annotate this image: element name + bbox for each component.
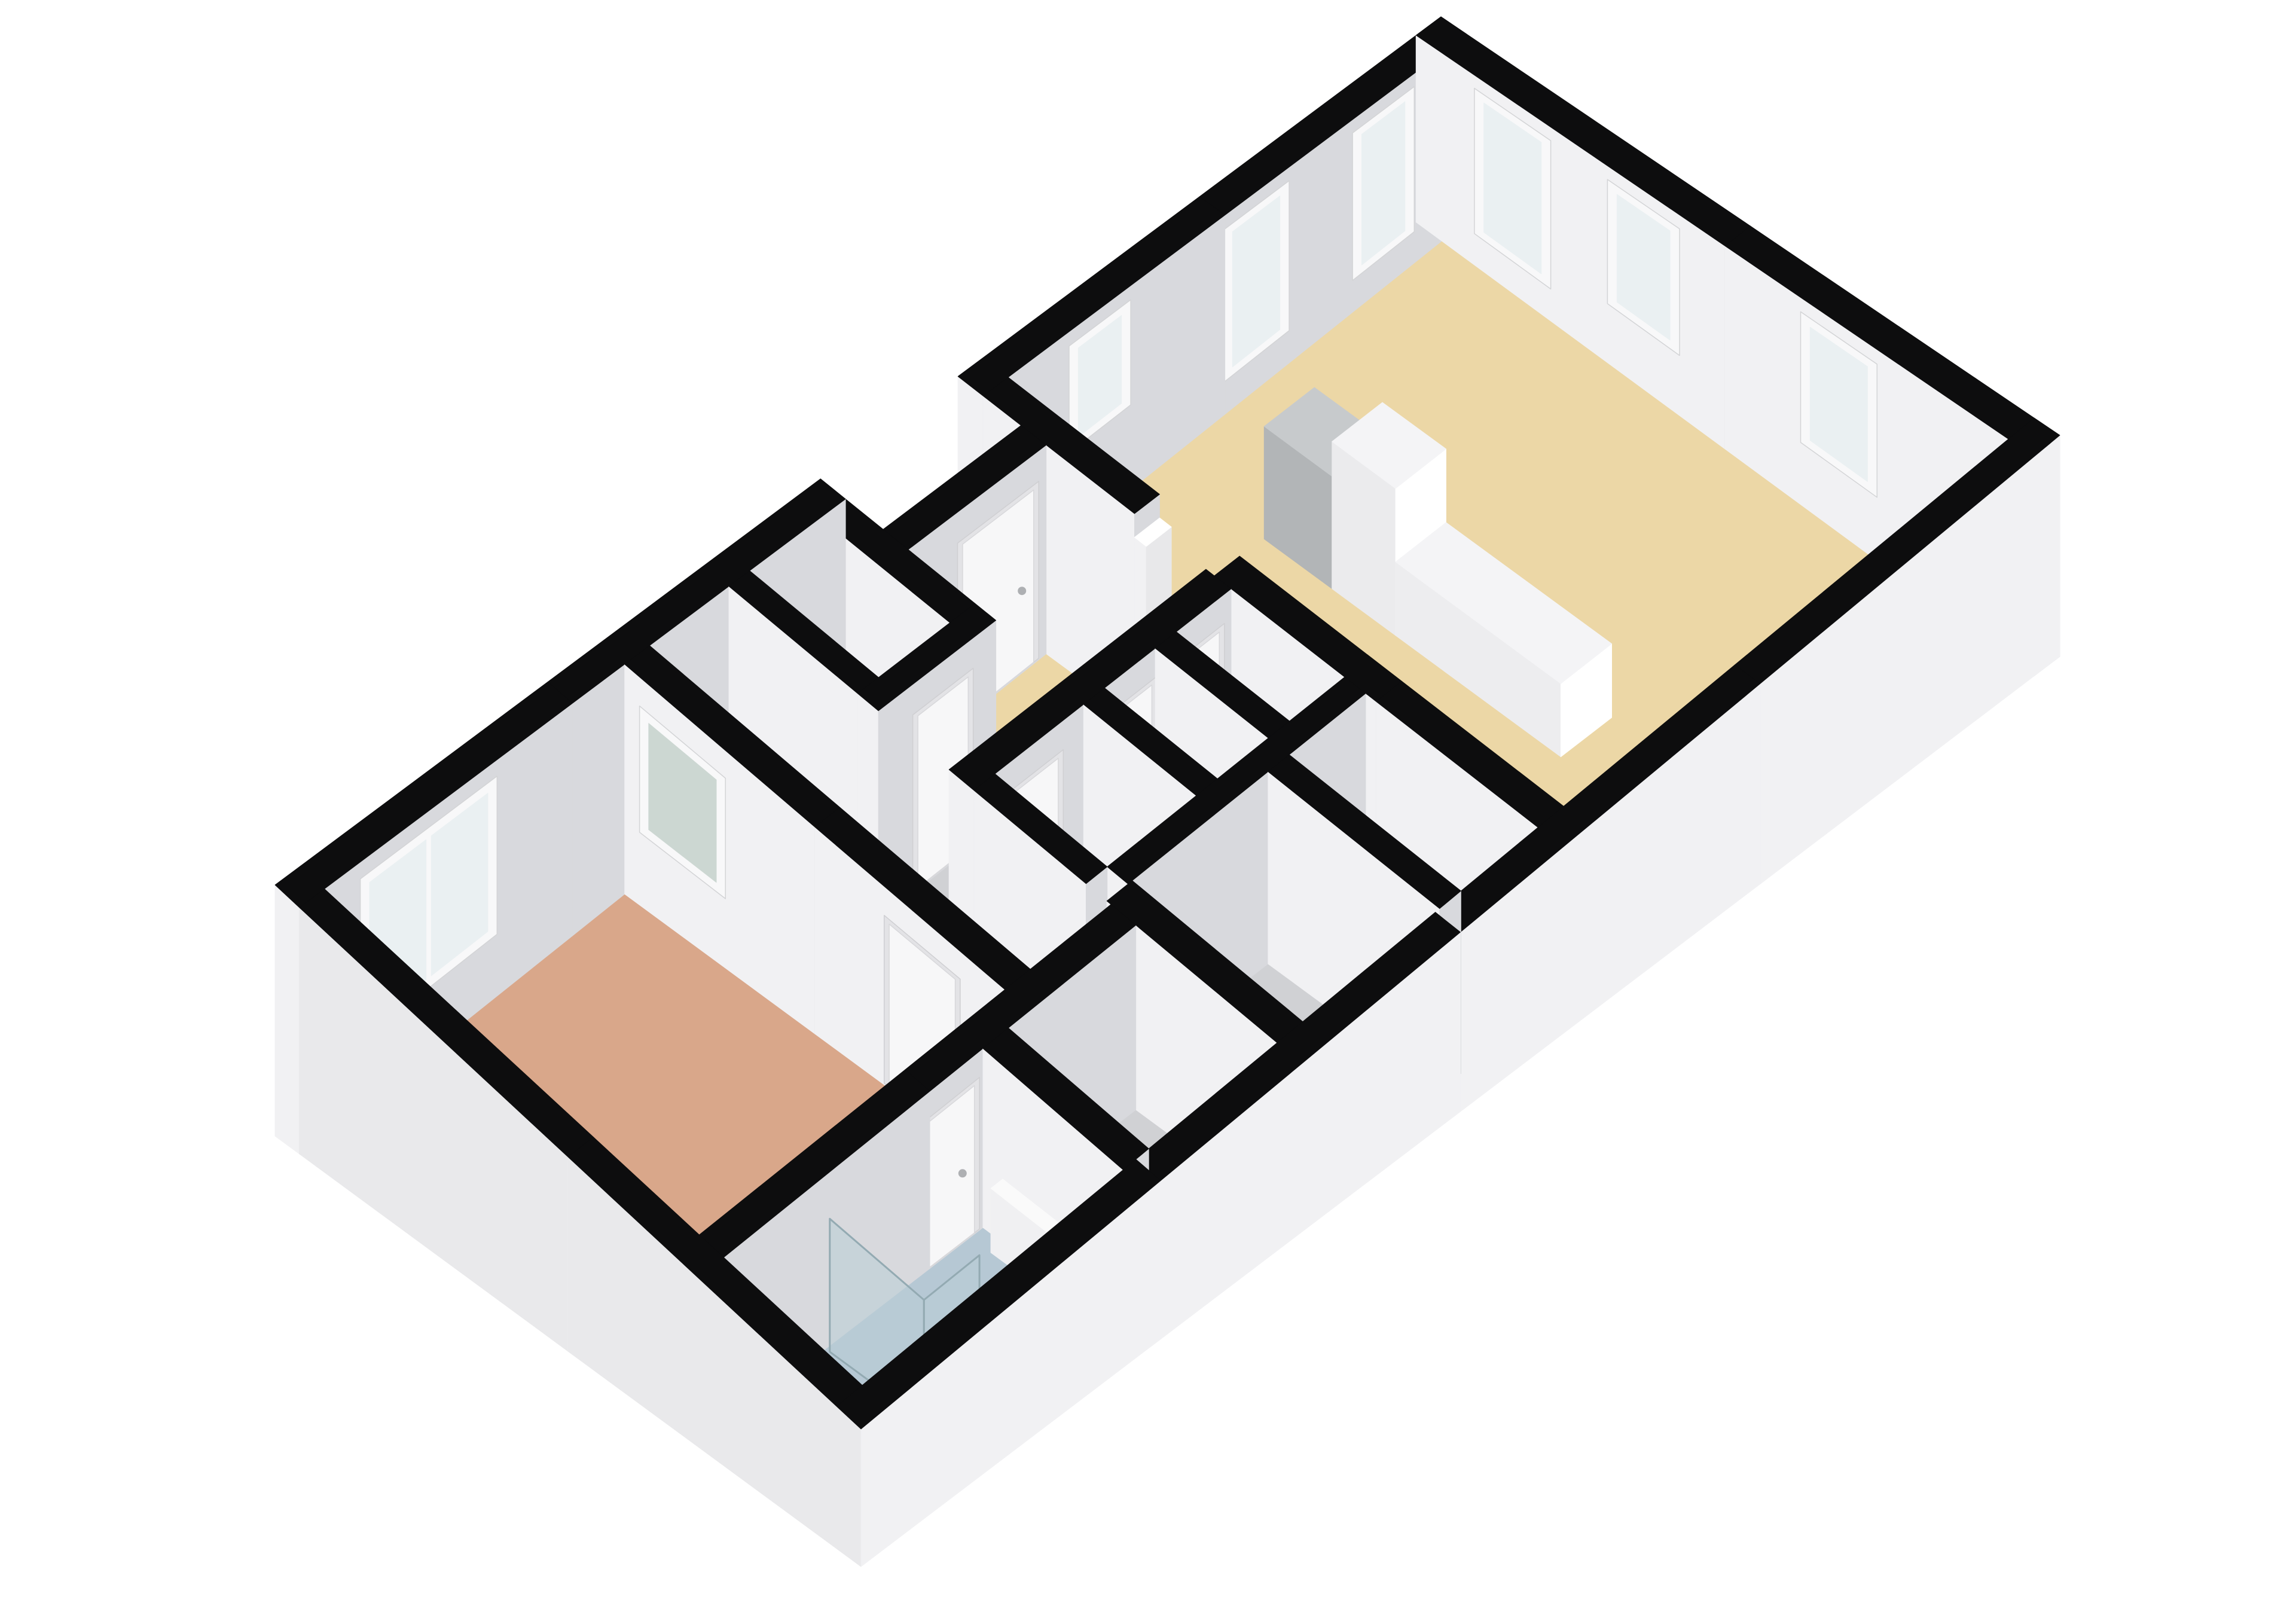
ext-se-0-face-left — [836, 1406, 861, 1567]
floorplan-page: 3D isometric floor plan of an apartment,… — [0, 0, 2296, 1624]
ext-notch-front-door-handle — [1018, 587, 1026, 595]
ext-nw-left-0-face-left — [275, 885, 300, 1154]
int-bed-south-1-door-handle — [958, 1169, 967, 1177]
floorplan-canvas — [0, 0, 2296, 1624]
